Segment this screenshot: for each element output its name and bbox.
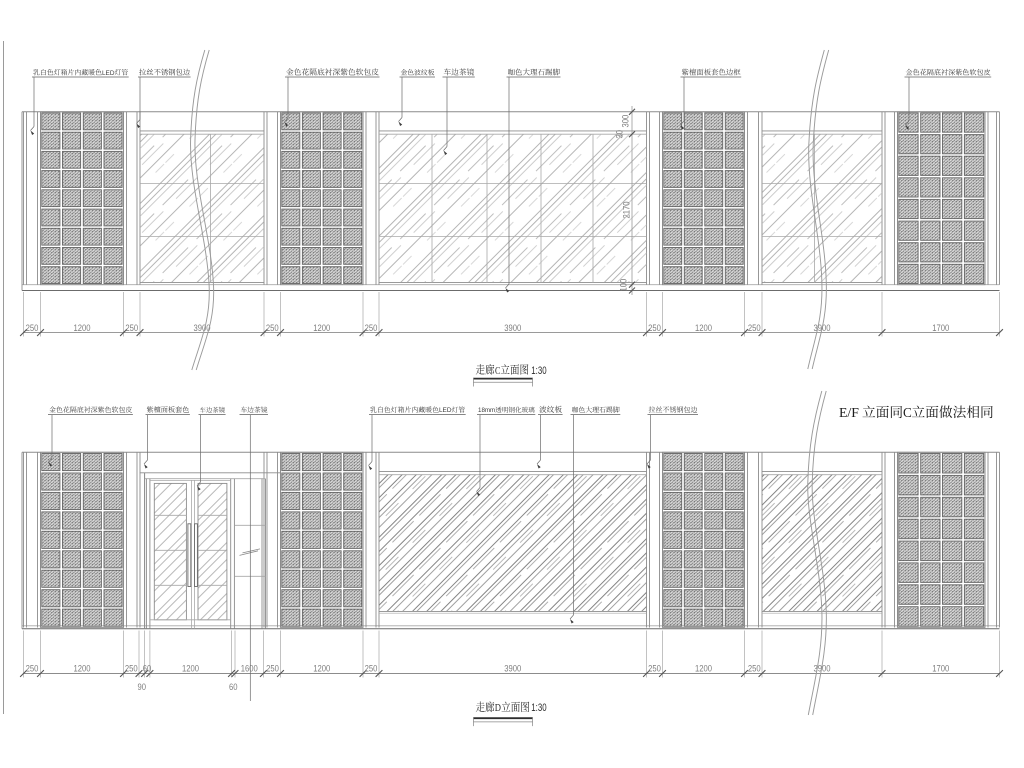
svg-text:90: 90 — [138, 681, 147, 692]
svg-text:1200: 1200 — [74, 322, 91, 333]
svg-text:2170: 2170 — [622, 202, 632, 219]
svg-text:100: 100 — [619, 279, 629, 292]
svg-text:30: 30 — [615, 130, 625, 139]
svg-text:3900: 3900 — [504, 663, 521, 674]
svg-text:3900: 3900 — [504, 322, 521, 333]
svg-text:250: 250 — [748, 322, 761, 333]
svg-text:1200: 1200 — [695, 322, 712, 333]
svg-text:250: 250 — [365, 663, 378, 674]
svg-text:1200: 1200 — [182, 663, 199, 674]
svg-text:60: 60 — [229, 681, 238, 692]
svg-text:300: 300 — [621, 115, 631, 128]
svg-text:LED: LED — [439, 407, 452, 414]
svg-text:LED: LED — [102, 70, 115, 77]
svg-text:1200: 1200 — [74, 663, 91, 674]
svg-text:250: 250 — [26, 322, 39, 333]
svg-text:250: 250 — [748, 663, 761, 674]
svg-text:250: 250 — [365, 322, 378, 333]
svg-text:C: C — [903, 405, 912, 420]
svg-text:250: 250 — [266, 663, 279, 674]
svg-text:250: 250 — [648, 322, 661, 333]
svg-text:250: 250 — [26, 663, 39, 674]
svg-text:1600: 1600 — [241, 663, 258, 674]
svg-text:D: D — [495, 702, 501, 714]
svg-text:1:30: 1:30 — [531, 702, 546, 714]
svg-text:C: C — [495, 365, 500, 377]
svg-text:E/F: E/F — [839, 405, 859, 420]
svg-text:250: 250 — [266, 322, 279, 333]
svg-text:60: 60 — [143, 663, 152, 674]
svg-text:18mm: 18mm — [478, 407, 495, 414]
svg-text:1200: 1200 — [313, 663, 330, 674]
svg-text:250: 250 — [648, 663, 661, 674]
svg-text:250: 250 — [125, 663, 138, 674]
svg-text:1200: 1200 — [313, 322, 330, 333]
svg-text:1700: 1700 — [932, 663, 949, 674]
svg-text:1:30: 1:30 — [531, 365, 546, 377]
svg-text:1700: 1700 — [932, 322, 949, 333]
svg-text:1200: 1200 — [695, 663, 712, 674]
svg-text:250: 250 — [125, 322, 138, 333]
